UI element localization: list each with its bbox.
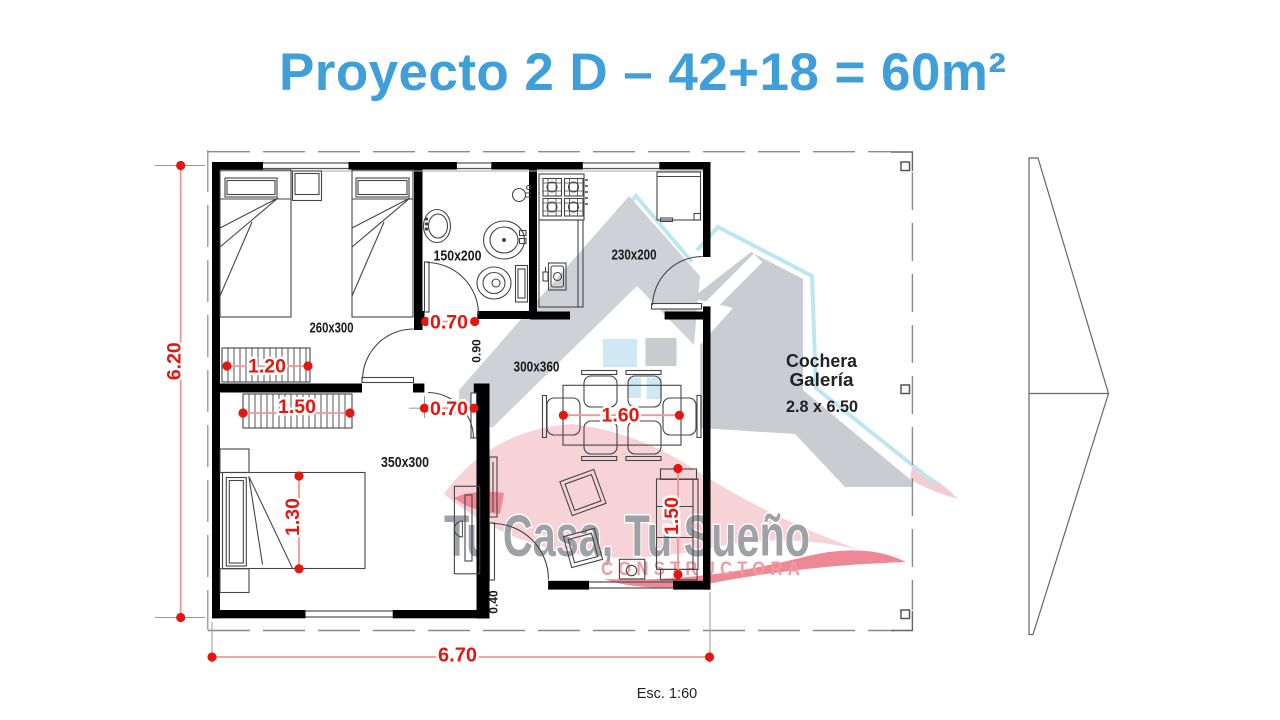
svg-text:150x200: 150x200 — [434, 248, 482, 265]
svg-text:Cochera: Cochera — [786, 351, 858, 371]
svg-text:1.50: 1.50 — [661, 497, 683, 535]
svg-text:230x200: 230x200 — [612, 247, 657, 264]
svg-text:6.20: 6.20 — [164, 342, 186, 380]
svg-text:0.70: 0.70 — [430, 312, 468, 334]
svg-text:260x300: 260x300 — [310, 320, 354, 337]
svg-text:Galería: Galería — [790, 370, 855, 390]
svg-text:1.60: 1.60 — [602, 405, 640, 427]
svg-text:6.70: 6.70 — [438, 645, 477, 667]
svg-text:2.8 x 6.50: 2.8 x 6.50 — [786, 398, 858, 416]
svg-text:0.70: 0.70 — [430, 398, 468, 420]
svg-text:Proyecto 2 D – 42+18 = 60m²: Proyecto 2 D – 42+18 = 60m² — [279, 43, 1006, 102]
svg-text:350x300: 350x300 — [381, 454, 429, 471]
svg-text:0.90: 0.90 — [470, 339, 484, 363]
svg-text:300x360: 300x360 — [514, 359, 560, 376]
svg-text:0.40: 0.40 — [487, 590, 501, 614]
svg-text:Esc. 1:60: Esc. 1:60 — [637, 686, 697, 702]
svg-text:1.50: 1.50 — [278, 396, 316, 418]
svg-text:1.30: 1.30 — [282, 498, 304, 536]
svg-text:1.20: 1.20 — [248, 356, 286, 378]
